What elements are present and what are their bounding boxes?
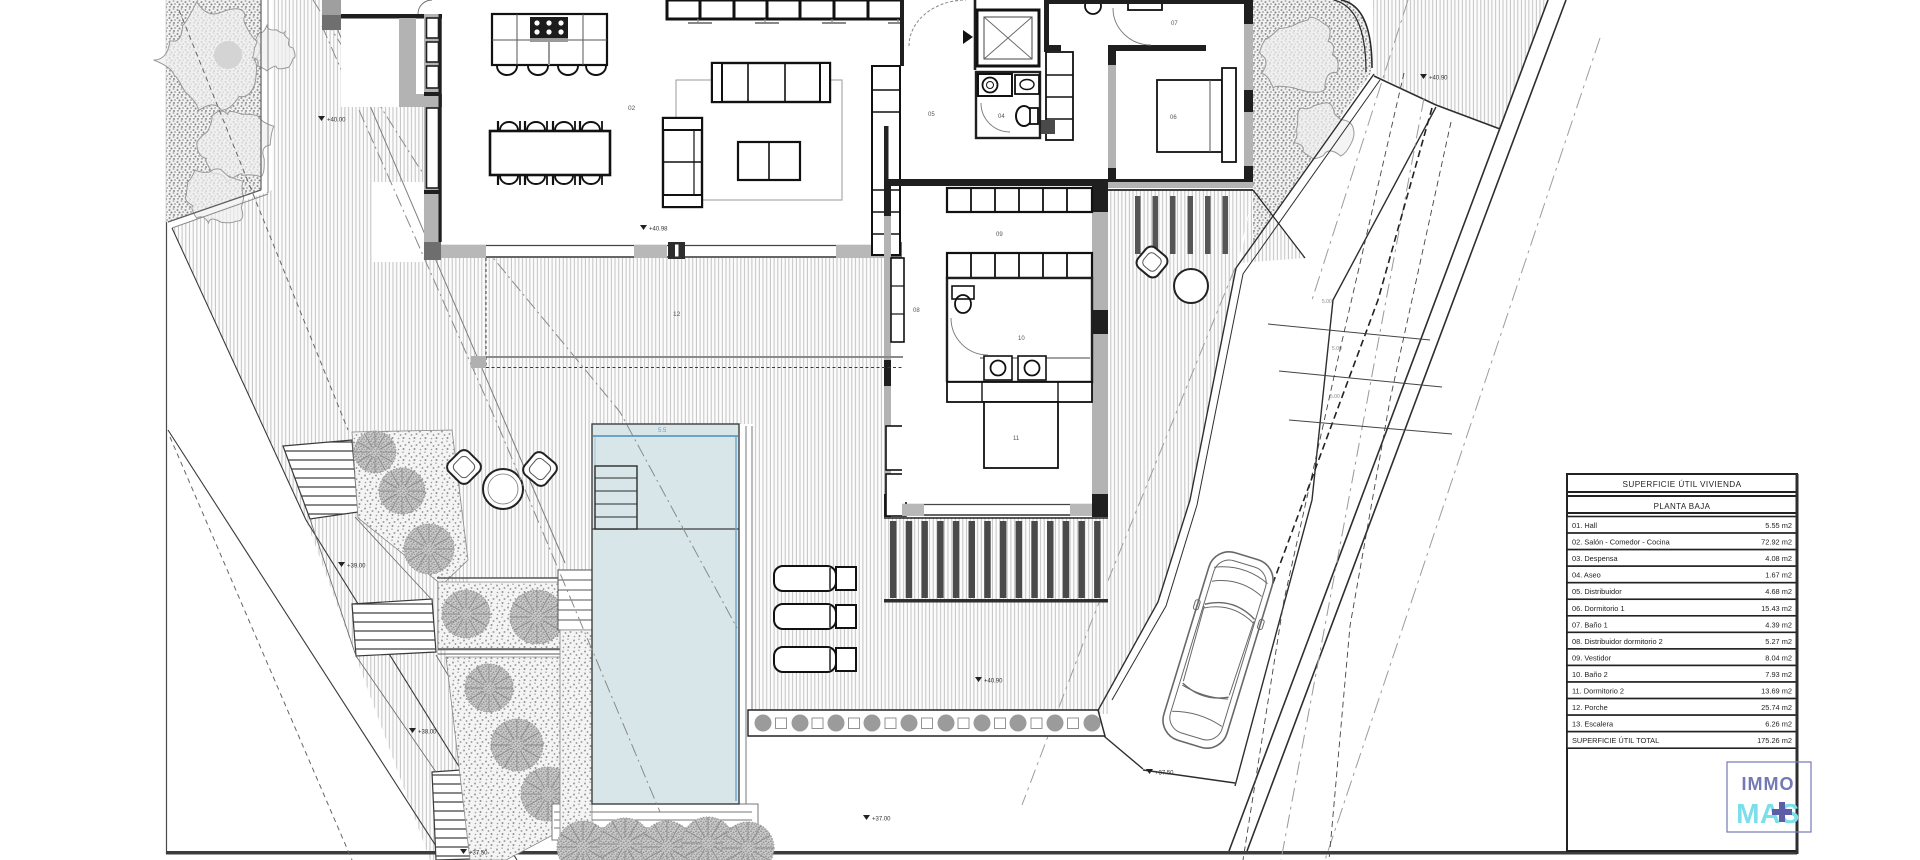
svg-text:07: 07: [1171, 21, 1178, 27]
svg-text:+37.50: +37.50: [1155, 771, 1174, 777]
svg-text:11. Dormitorio 2: 11. Dormitorio 2: [1572, 687, 1624, 696]
svg-text:13.69 m2: 13.69 m2: [1761, 687, 1792, 696]
svg-text:04: 04: [998, 114, 1005, 120]
svg-text:72.92 m2: 72.92 m2: [1761, 538, 1792, 547]
svg-text:4.08 m2: 4.08 m2: [1765, 554, 1792, 563]
svg-text:5.27 m2: 5.27 m2: [1765, 637, 1792, 646]
svg-text:5.00: 5.00: [1322, 299, 1332, 305]
svg-text:08. Distribuidor dormitorio 2: 08. Distribuidor dormitorio 2: [1572, 637, 1663, 646]
svg-text:11: 11: [1013, 436, 1020, 442]
svg-text:01. Hall: 01. Hall: [1572, 521, 1597, 530]
svg-text:175.26 m2: 175.26 m2: [1757, 736, 1792, 745]
svg-text:06. Dormitorio 1: 06. Dormitorio 1: [1572, 604, 1625, 613]
svg-text:5.55 m2: 5.55 m2: [1765, 521, 1792, 530]
svg-text:13. Escalera: 13. Escalera: [1572, 720, 1614, 729]
svg-text:02: 02: [628, 105, 636, 112]
svg-text:SUPERFICIE ÚTIL TOTAL: SUPERFICIE ÚTIL TOTAL: [1572, 736, 1659, 745]
svg-text:25.74 m2: 25.74 m2: [1761, 703, 1792, 712]
svg-text:10. Baño 2: 10. Baño 2: [1572, 670, 1608, 679]
svg-text:05. Distribuidor: 05. Distribuidor: [1572, 587, 1622, 596]
svg-text:12. Porche: 12. Porche: [1572, 703, 1608, 712]
svg-text:5.00: 5.00: [1330, 394, 1340, 400]
svg-text:8.04 m2: 8.04 m2: [1765, 653, 1792, 662]
svg-text:02. Salón - Comedor - Cocina: 02. Salón - Comedor - Cocina: [1572, 538, 1671, 547]
svg-text:15.43 m2: 15.43 m2: [1761, 604, 1792, 613]
svg-text:5.00: 5.00: [1332, 346, 1342, 352]
svg-text:07. Baño 1: 07. Baño 1: [1572, 620, 1608, 629]
svg-text:6.26 m2: 6.26 m2: [1765, 720, 1792, 729]
svg-text:SUPERFICIE ÚTIL VIVIENDA: SUPERFICIE ÚTIL VIVIENDA: [1623, 479, 1742, 489]
svg-text:05: 05: [928, 112, 935, 118]
svg-text:PLANTA BAJA: PLANTA BAJA: [1654, 502, 1711, 511]
svg-text:08: 08: [913, 308, 920, 314]
svg-text:+40.00: +40.00: [327, 118, 346, 124]
svg-text:04. Aseo: 04. Aseo: [1572, 571, 1601, 580]
svg-text:06: 06: [1170, 115, 1177, 121]
svg-text:09. Vestidor: 09. Vestidor: [1572, 653, 1612, 662]
svg-text:+37.50: +37.50: [469, 851, 488, 857]
svg-text:+38.00: +38.00: [418, 730, 437, 736]
svg-text:+37.00: +37.00: [872, 817, 891, 823]
svg-text:09: 09: [996, 232, 1003, 238]
svg-text:4.68 m2: 4.68 m2: [1765, 587, 1792, 596]
svg-text:12: 12: [673, 311, 681, 318]
svg-text:+40.98: +40.98: [649, 227, 668, 233]
svg-text:5.5: 5.5: [658, 428, 667, 434]
svg-text:4.39 m2: 4.39 m2: [1765, 620, 1792, 629]
svg-text:+39.00: +39.00: [347, 564, 366, 570]
svg-text:+40.90: +40.90: [1429, 76, 1448, 82]
svg-text:10: 10: [1018, 336, 1025, 342]
svg-text:03. Despensa: 03. Despensa: [1572, 554, 1618, 563]
svg-text:+40.90: +40.90: [984, 679, 1003, 685]
svg-text:IMMO: IMMO: [1742, 774, 1795, 794]
svg-text:7.93 m2: 7.93 m2: [1765, 670, 1792, 679]
svg-text:1.67 m2: 1.67 m2: [1765, 571, 1792, 580]
